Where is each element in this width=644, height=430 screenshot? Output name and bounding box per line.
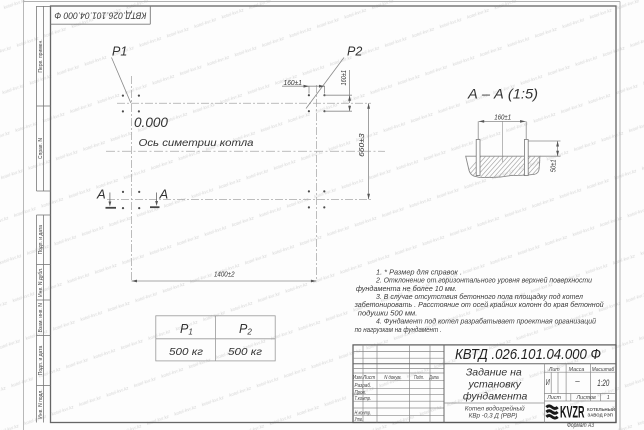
- svg-text:Задание на: Задание на: [466, 367, 522, 379]
- svg-text:фундамента: фундамента: [463, 390, 528, 402]
- svg-text:Лит: Лит: [548, 367, 561, 373]
- svg-text:КВТД.026.101.04.000 Ф: КВТД.026.101.04.000 Ф: [54, 9, 146, 20]
- svg-text:Перв. примен.: Перв. примен.: [38, 39, 44, 72]
- svg-text:Дата: Дата: [428, 375, 438, 381]
- svg-text:500 кг: 500 кг: [228, 347, 262, 358]
- svg-text:Инв. N подл.: Инв. N подл.: [38, 389, 44, 418]
- svg-text:Справ. N: Справ. N: [38, 138, 44, 159]
- svg-text:КВТД .026.101.04.000 Ф: КВТД .026.101.04.000 Ф: [455, 346, 601, 363]
- svg-text:КВр -0,3 Д (РВР): КВр -0,3 Д (РВР): [469, 412, 518, 419]
- svg-text:А: А: [159, 187, 169, 202]
- svg-text:Котел водогрейный: Котел водогрейный: [465, 405, 525, 413]
- svg-text:160±1: 160±1: [341, 70, 348, 86]
- svg-text:КОТЕЛЬНЫЙ: КОТЕЛЬНЫЙ: [587, 407, 615, 412]
- svg-text:Подп. и дата: Подп. и дата: [38, 346, 44, 376]
- svg-text:Подп. и дата: Подп. и дата: [38, 225, 44, 255]
- svg-text:Лист: Лист: [546, 395, 561, 401]
- svg-text:Н.контр.: Н.контр.: [355, 411, 372, 417]
- svg-text:0.000: 0.000: [134, 115, 168, 130]
- svg-text:160±1: 160±1: [284, 78, 303, 87]
- svg-text:Масштаб: Масштаб: [592, 367, 615, 373]
- svg-text:1: 1: [607, 395, 610, 401]
- svg-text:500 кг: 500 кг: [169, 347, 203, 358]
- svg-text:Формат А3: Формат А3: [567, 422, 594, 429]
- svg-text:Разраб.: Разраб.: [355, 383, 372, 389]
- svg-text:Инв. N дубл.: Инв. N дубл.: [38, 268, 44, 297]
- svg-text:по нагрузкам на фундамент .: по нагрузкам на фундамент .: [355, 325, 442, 334]
- svg-text:1:20: 1:20: [597, 378, 609, 388]
- svg-text:А – А (1:5): А – А (1:5): [467, 87, 538, 102]
- svg-text:KVZR: KVZR: [560, 404, 585, 422]
- svg-text:Утв.: Утв.: [355, 417, 363, 423]
- svg-text:P2: P2: [347, 45, 362, 59]
- svg-text:установку: установку: [468, 379, 522, 391]
- svg-text:50±1: 50±1: [549, 159, 558, 172]
- svg-text:160±1: 160±1: [494, 113, 511, 122]
- svg-text:Изм.Лист: Изм.Лист: [353, 375, 375, 381]
- svg-text:А: А: [96, 187, 106, 202]
- svg-text:1400±2: 1400±2: [214, 270, 235, 279]
- svg-text:ЗАВОД РЭП: ЗАВОД РЭП: [588, 413, 613, 418]
- svg-text:P1: P1: [112, 45, 127, 59]
- svg-text:Масса: Масса: [569, 367, 585, 373]
- svg-text:Ось симетрии котла: Ось симетрии котла: [139, 137, 254, 149]
- svg-text:Т.контр.: Т.контр.: [355, 396, 372, 402]
- svg-text:Взам. инв. N: Взам. инв. N: [38, 303, 44, 333]
- svg-text:N докум.: N докум.: [384, 375, 402, 381]
- svg-text:Подп.: Подп.: [414, 375, 424, 381]
- svg-text:Листов: Листов: [576, 395, 597, 401]
- svg-text:И: И: [546, 378, 550, 387]
- svg-text:Пров.: Пров.: [355, 390, 367, 396]
- svg-text:660±3: 660±3: [357, 132, 366, 156]
- svg-text:–: –: [575, 376, 580, 385]
